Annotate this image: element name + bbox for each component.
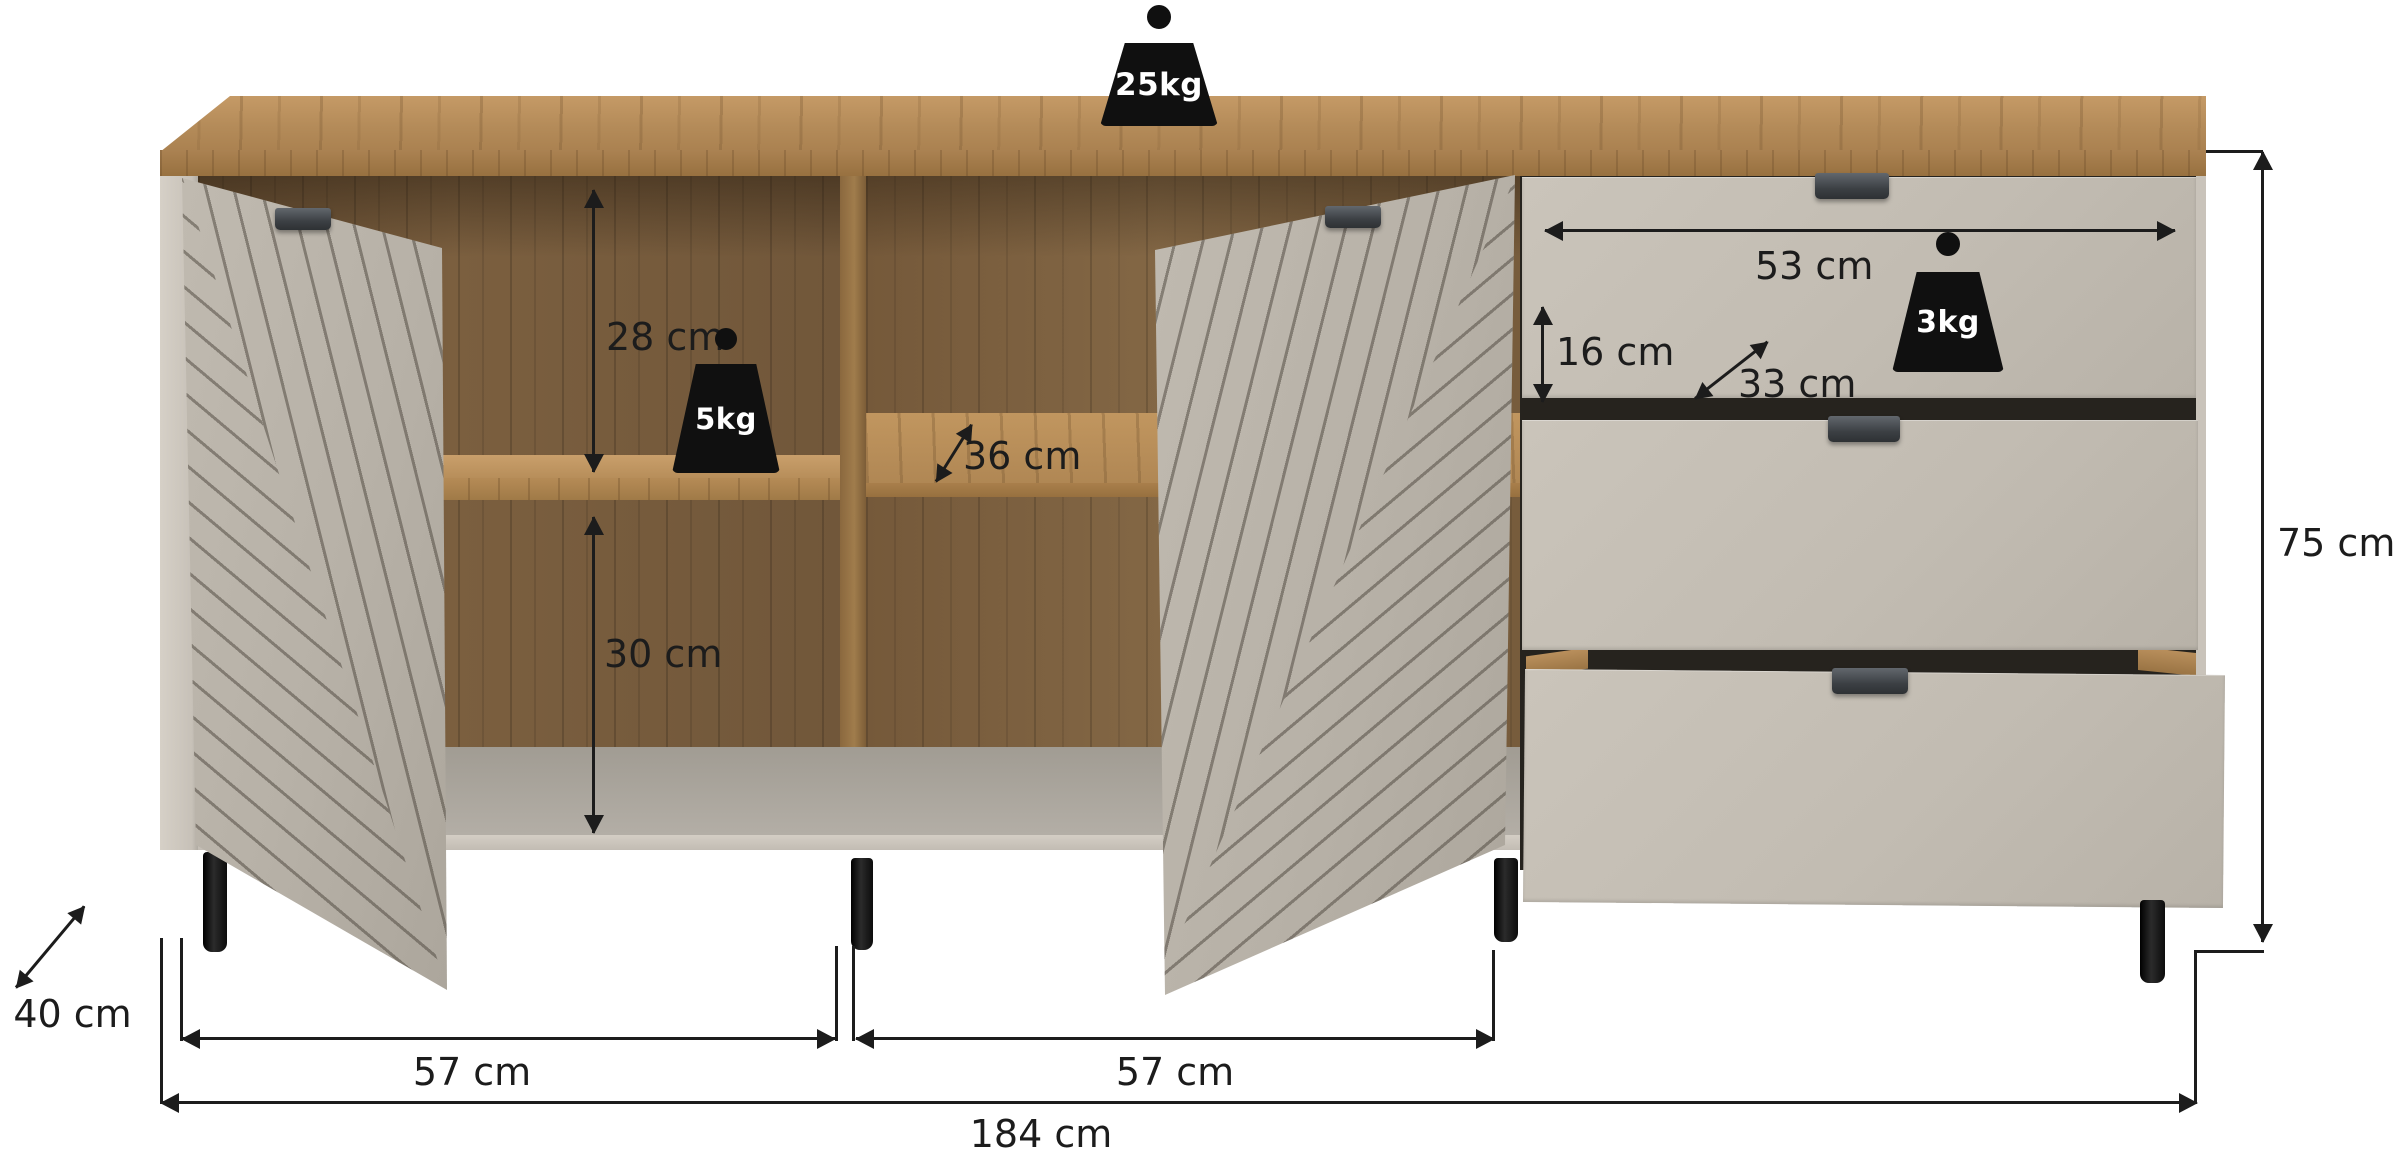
dim-tick-57cm-a-right xyxy=(835,946,838,1041)
right-door-handle xyxy=(1325,206,1381,228)
dim-label-75cm: 75 cm xyxy=(2277,521,2395,565)
dim-tick-57cm-b-right xyxy=(1492,950,1495,1041)
dim-arrow-16cm xyxy=(1541,307,1544,402)
bottom-drawer-handle xyxy=(1832,668,1908,694)
leg-center-left xyxy=(851,858,873,950)
dim-arrow-184cm xyxy=(161,1101,2197,1104)
bottom-drawer-front xyxy=(1523,669,2225,908)
top-drawer-handle xyxy=(1815,173,1889,199)
leg-center-right xyxy=(1494,858,1518,942)
weight-3kg-icon: 3kg xyxy=(1892,232,2004,372)
dim-tick-57cm-b-left xyxy=(852,946,855,1041)
dim-label-36cm: 36 cm xyxy=(963,434,1081,478)
middle-drawer-handle xyxy=(1828,416,1900,442)
leg-front-right xyxy=(2140,900,2165,983)
sideboard-top-front-edge xyxy=(160,150,2206,177)
dim-arrow-57cm-middle xyxy=(856,1037,1494,1040)
dim-label-16cm: 16 cm xyxy=(1556,330,1674,374)
dim-tick-184cm-left xyxy=(160,938,163,1104)
weight-5kg-icon: 5kg xyxy=(672,328,780,473)
weight-5kg-label: 5kg xyxy=(695,402,757,436)
dim-extension-75cm xyxy=(2194,950,2197,1104)
dim-arrow-53cm xyxy=(1545,229,2175,232)
dim-label-184cm: 184 cm xyxy=(161,1112,1921,1151)
weight-ring xyxy=(1147,5,1171,29)
weight-ring xyxy=(1936,232,1960,256)
dim-arrow-28cm xyxy=(592,190,595,472)
weight-3kg-label: 3kg xyxy=(1916,305,1980,340)
sideboard-dimension-diagram: 25kg 5kg 3kg 28 cm 30 cm 36 cm 53 cm 16 … xyxy=(0,0,2400,1151)
dim-label-53cm: 53 cm xyxy=(1755,244,1873,288)
dim-arrow-75cm xyxy=(2261,152,2264,942)
weight-body: 3kg xyxy=(1892,272,2004,372)
dim-label-40cm: 40 cm xyxy=(0,992,145,1036)
dim-tick-57cm-a-left xyxy=(180,938,183,1041)
dim-arrow-30cm xyxy=(592,517,595,833)
dim-arrow-57cm-left xyxy=(182,1037,835,1040)
dim-label-57cm-left: 57 cm xyxy=(182,1050,762,1094)
dim-label-57cm-middle: 57 cm xyxy=(856,1050,1494,1094)
left-door-handle xyxy=(275,208,331,230)
weight-body: 25kg xyxy=(1100,43,1218,126)
dim-tick-75cm-bottom xyxy=(2194,950,2264,953)
dim-arrow-40cm xyxy=(15,905,85,988)
dim-label-30cm: 30 cm xyxy=(604,632,722,676)
weight-25kg-label: 25kg xyxy=(1115,67,1203,103)
middle-drawer-front xyxy=(1522,420,2198,650)
weight-ring xyxy=(715,328,737,350)
weight-25kg-icon: 25kg xyxy=(1100,5,1218,126)
weight-body: 5kg xyxy=(672,364,780,473)
right-door-open xyxy=(1152,173,1517,997)
dim-label-33cm: 33 cm xyxy=(1738,362,1856,406)
leg-front-left xyxy=(203,852,227,952)
